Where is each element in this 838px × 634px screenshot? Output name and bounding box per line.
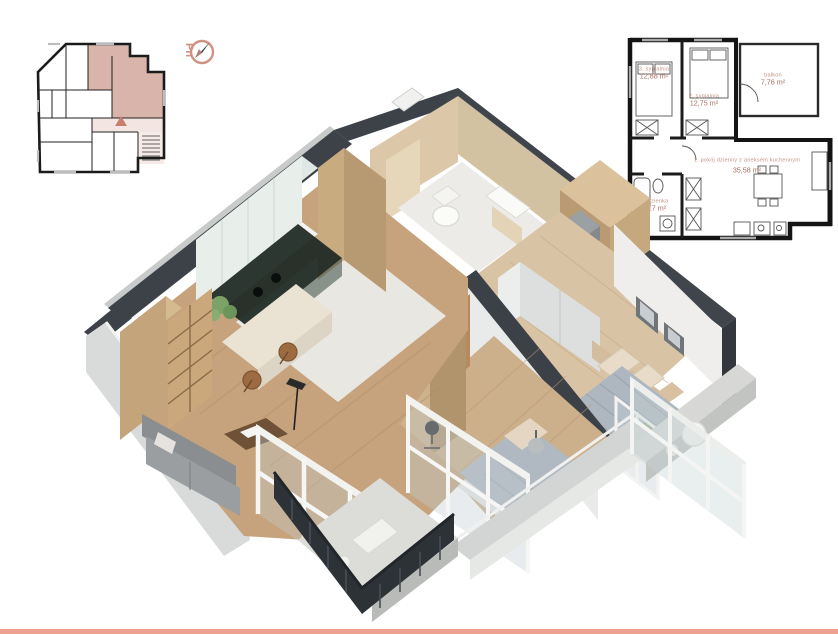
footer-accent-bar — [0, 629, 838, 634]
side-table — [528, 438, 544, 454]
right-balcony — [628, 364, 756, 538]
toilet — [433, 206, 459, 226]
apartment-3d-view — [0, 0, 838, 634]
floorplan-page: Pn — [0, 0, 838, 634]
